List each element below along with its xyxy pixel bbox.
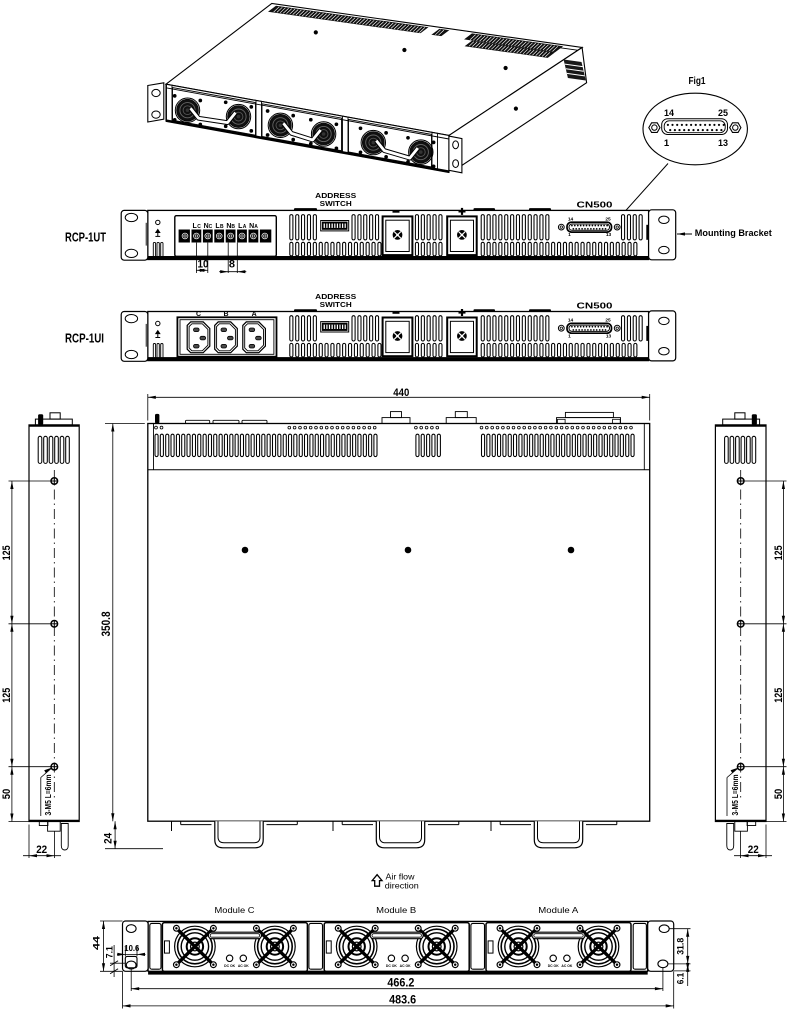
svg-text:13: 13 xyxy=(606,333,612,339)
svg-text:125: 125 xyxy=(1,688,13,703)
svg-text:25: 25 xyxy=(718,108,729,119)
svg-text:125: 125 xyxy=(773,688,785,703)
svg-text:1: 1 xyxy=(568,232,571,238)
svg-text:B: B xyxy=(223,311,228,318)
svg-text:B: B xyxy=(231,224,235,230)
svg-text:50: 50 xyxy=(1,789,13,800)
svg-text:25: 25 xyxy=(605,318,611,324)
svg-text:3-M5 L=6mm: 3-M5 L=6mm xyxy=(731,775,740,816)
svg-text:C: C xyxy=(196,311,201,318)
svg-text:Air flow: Air flow xyxy=(386,873,415,882)
svg-text:Mounting Bracket: Mounting Bracket xyxy=(695,228,772,238)
svg-text:DC OK: DC OK xyxy=(224,964,235,968)
svg-text:Fig1: Fig1 xyxy=(689,76,706,87)
svg-text:24: 24 xyxy=(103,832,115,844)
svg-text:350.8: 350.8 xyxy=(101,611,113,637)
svg-text:13: 13 xyxy=(606,232,612,238)
svg-text:CN500: CN500 xyxy=(577,301,613,311)
svg-text:direction: direction xyxy=(385,882,419,891)
svg-text:3-M5 L=6mm: 3-M5 L=6mm xyxy=(44,775,53,816)
svg-text:B: B xyxy=(220,224,224,230)
svg-text:6.1: 6.1 xyxy=(675,972,686,984)
svg-text:13: 13 xyxy=(718,138,728,149)
svg-text:Module B: Module B xyxy=(376,905,416,915)
svg-text:AC OK: AC OK xyxy=(400,964,411,968)
svg-text:Module C: Module C xyxy=(215,905,255,915)
svg-text:SWITCH: SWITCH xyxy=(320,199,352,208)
svg-text:1: 1 xyxy=(568,333,571,339)
svg-text:1: 1 xyxy=(664,138,670,149)
svg-text:14: 14 xyxy=(568,318,574,324)
svg-text:AC OK: AC OK xyxy=(238,964,249,968)
svg-text:A: A xyxy=(254,224,258,230)
svg-text:22: 22 xyxy=(36,844,47,856)
svg-text:10: 10 xyxy=(198,258,209,270)
svg-text:14: 14 xyxy=(664,108,675,119)
svg-text:Module A: Module A xyxy=(538,905,578,915)
svg-text:50: 50 xyxy=(773,789,785,800)
svg-text:125: 125 xyxy=(1,545,13,560)
svg-text:A: A xyxy=(252,311,257,318)
svg-text:7.1: 7.1 xyxy=(104,946,114,958)
svg-text:31.8: 31.8 xyxy=(675,938,686,955)
svg-text:C: C xyxy=(197,224,201,230)
svg-text:DC OK: DC OK xyxy=(386,964,397,968)
svg-text:22: 22 xyxy=(748,844,759,856)
svg-text:A: A xyxy=(243,224,247,230)
svg-text:125: 125 xyxy=(773,545,785,560)
svg-text:RCP-1UI: RCP-1UI xyxy=(65,331,104,346)
svg-text:SWITCH: SWITCH xyxy=(320,300,352,309)
svg-text:C: C xyxy=(209,224,213,230)
svg-text:DC OK: DC OK xyxy=(548,964,559,968)
svg-text:14: 14 xyxy=(568,217,574,223)
svg-text:44: 44 xyxy=(92,935,103,950)
svg-text:RCP-1UT: RCP-1UT xyxy=(65,230,106,245)
svg-text:466.2: 466.2 xyxy=(387,977,414,989)
svg-text:CN500: CN500 xyxy=(577,200,613,210)
svg-text:25: 25 xyxy=(605,217,611,223)
svg-text:483.6: 483.6 xyxy=(389,995,416,1007)
svg-text:8: 8 xyxy=(229,258,235,270)
svg-text:440: 440 xyxy=(393,387,409,399)
svg-text:AC OK: AC OK xyxy=(561,964,572,968)
